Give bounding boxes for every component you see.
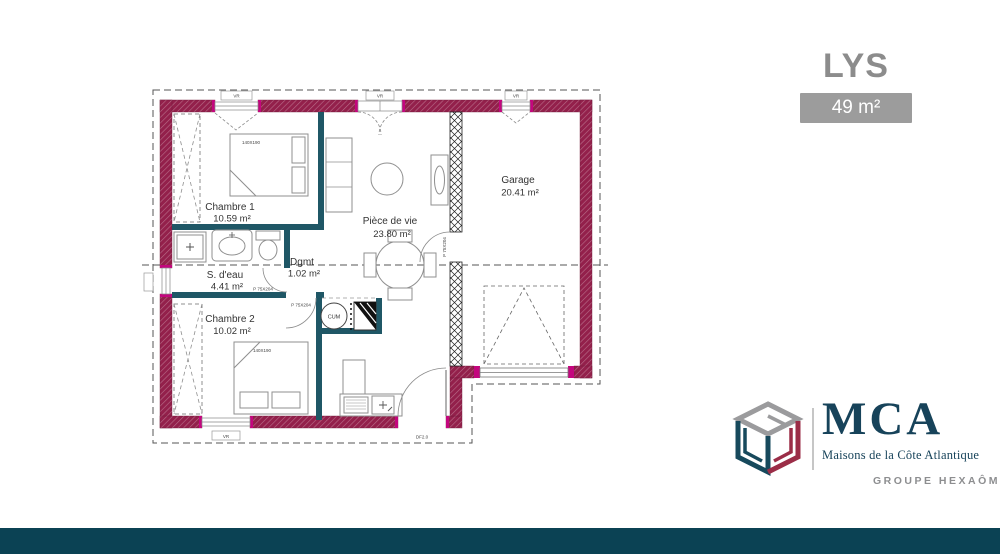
garage-door-swing [484, 286, 564, 364]
page: VR VR VR VR DF2 [0, 0, 1000, 554]
room-area: 10.59 m² [213, 214, 251, 225]
interior-walls [172, 112, 382, 420]
room-name: Pièce de vie [363, 216, 418, 227]
brand-group: GROUPE HEXAÔM [822, 475, 1000, 487]
window-label: VR [377, 94, 384, 99]
garage-wall: P 75X204 [420, 112, 462, 366]
floorplan: VR VR VR VR DF2 [140, 82, 625, 447]
room-area: 1.02 m² [288, 269, 320, 280]
footer-bar [0, 528, 1000, 554]
room-name: S. d'eau [207, 270, 243, 281]
bed-size-label: 140X190 [253, 348, 272, 353]
room-name: Chambre 2 [205, 314, 255, 325]
page-title: LYS [800, 48, 912, 85]
room-area: 23.80 m² [373, 229, 411, 240]
door-label: P 75X204 [291, 303, 311, 308]
room-area: 10.02 m² [213, 326, 251, 337]
door-label: P 75X204 [442, 237, 447, 257]
room-name: Dgmt [290, 257, 314, 268]
furniture-bathroom [174, 230, 280, 262]
water-heater-closet: CUM [321, 302, 376, 330]
title-block: LYS 49 m² [800, 48, 912, 123]
door-label: P 75X204 [253, 287, 273, 292]
window-label: VR [223, 434, 230, 439]
furniture-living [326, 138, 448, 416]
room-name: Chambre 1 [205, 202, 255, 213]
water-heater-label: CUM [328, 315, 341, 321]
area-badge: 49 m² [800, 93, 912, 123]
room-name: Garage [501, 175, 535, 186]
window-label: VR [513, 94, 520, 99]
bed-size-label: 140X190 [242, 140, 261, 145]
room-area: 4.41 m² [211, 282, 243, 293]
window-label: VR [233, 94, 240, 99]
mca-cube-logo-icon [732, 400, 804, 480]
brand-tagline: Maisons de la Côte Atlantique [822, 448, 1000, 463]
entry-door-label: DF2.0 [416, 435, 429, 440]
brand-text-block: MCA Maisons de la Côte Atlantique GROUPE… [822, 394, 1000, 487]
brand-name: MCA [822, 394, 1000, 446]
room-area: 20.41 m² [501, 188, 539, 199]
brand-divider [812, 408, 814, 470]
